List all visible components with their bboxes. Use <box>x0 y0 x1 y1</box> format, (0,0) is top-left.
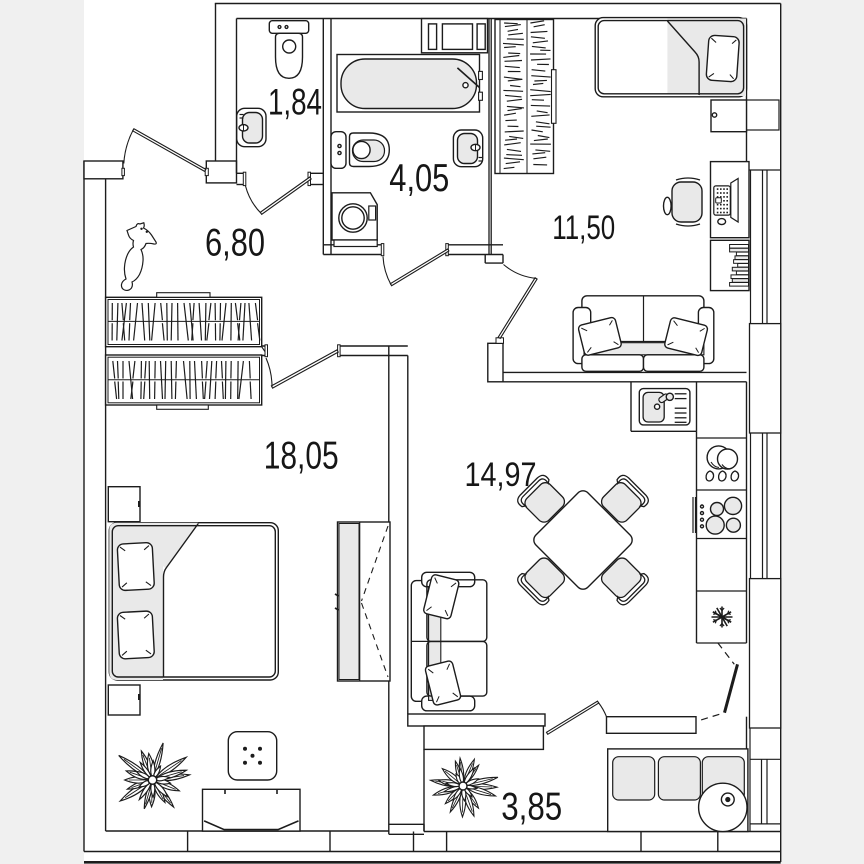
svg-text:18,05: 18,05 <box>264 435 339 478</box>
svg-text:11,50: 11,50 <box>552 209 615 247</box>
svg-text:3,85: 3,85 <box>501 786 562 829</box>
svg-text:6,80: 6,80 <box>205 221 265 264</box>
svg-text:1,84: 1,84 <box>268 81 322 123</box>
svg-text:14,97: 14,97 <box>465 456 537 494</box>
svg-text:4,05: 4,05 <box>389 157 449 200</box>
